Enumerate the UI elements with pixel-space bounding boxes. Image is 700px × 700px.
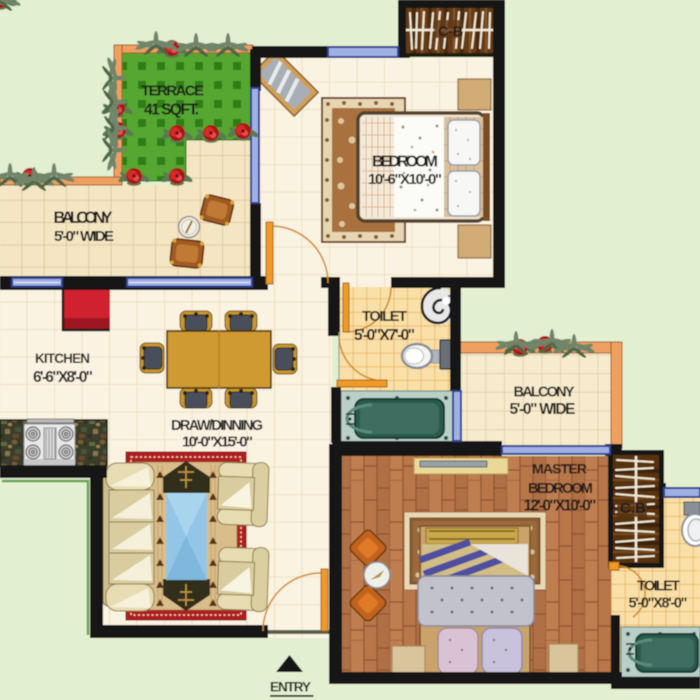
svg-text:5'-0" WIDE: 5'-0" WIDE xyxy=(510,401,576,418)
svg-text:KITCHEN: KITCHEN xyxy=(35,351,90,366)
svg-text:TERRACE: TERRACE xyxy=(141,83,204,100)
svg-text:C.B: C.B xyxy=(620,500,646,517)
svg-text:C-B: C-B xyxy=(438,23,463,39)
svg-text:BALCONY: BALCONY xyxy=(514,385,575,401)
svg-text:BEDROOM: BEDROOM xyxy=(372,154,438,171)
svg-text:BALCONY: BALCONY xyxy=(54,209,113,227)
svg-text:5'-0"X8'-0": 5'-0"X8'-0" xyxy=(629,596,688,612)
svg-text:BEDROOM: BEDROOM xyxy=(528,481,593,497)
svg-text:12'-0"X10'-0": 12'-0"X10'-0" xyxy=(524,498,597,515)
svg-text:ENTRY: ENTRY xyxy=(270,680,311,695)
svg-text:41 SQFT.: 41 SQFT. xyxy=(144,102,199,119)
svg-text:DRAW/DINNING: DRAW/DINNING xyxy=(171,418,263,434)
svg-text:MASTER: MASTER xyxy=(532,461,587,477)
svg-text:TOILET: TOILET xyxy=(637,579,680,595)
svg-text:TOILET: TOILET xyxy=(362,309,407,325)
svg-text:5'-0" WIDE: 5'-0" WIDE xyxy=(54,228,114,245)
svg-text:10'-0"X15'-0": 10'-0"X15'-0" xyxy=(182,434,253,451)
svg-text:6'-6"X8'-0": 6'-6"X8'-0" xyxy=(33,369,93,386)
svg-text:5'-0"X7'-0": 5'-0"X7'-0" xyxy=(354,327,415,344)
svg-text:10'-6"X10'-0": 10'-6"X10'-0" xyxy=(368,171,442,188)
